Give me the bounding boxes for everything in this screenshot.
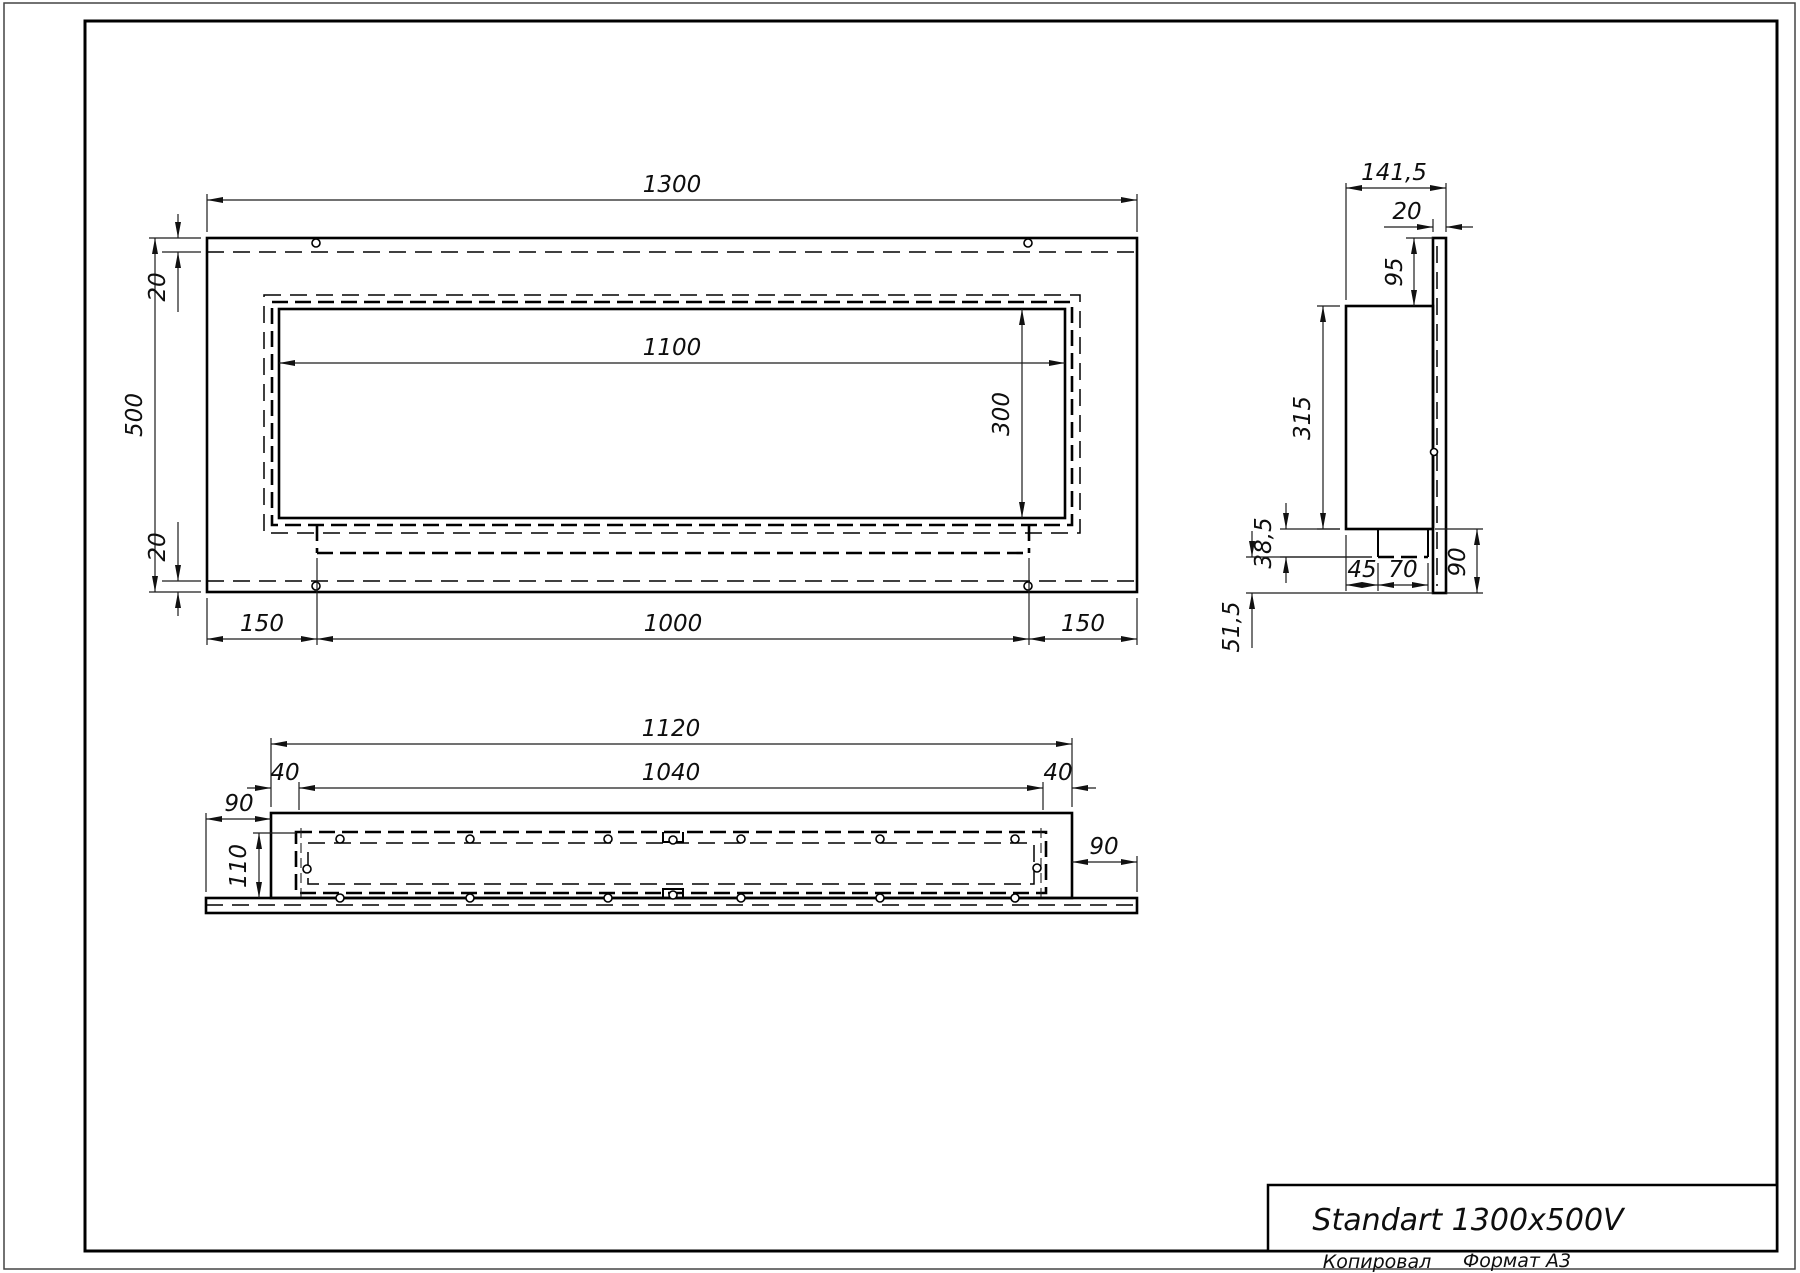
title-block: Standart 1300x500V Копировал Формат А3 bbox=[1268, 1185, 1777, 1273]
plan-view: 1120 1040 40 40 90 90 110 bbox=[206, 716, 1137, 913]
dim-plan-body-width: 1120 bbox=[642, 716, 701, 742]
drawing-canvas: 1300 500 20 20 150 1000 150 1100 300 bbox=[0, 0, 1800, 1273]
hole-icon bbox=[669, 891, 677, 899]
hole-icon bbox=[876, 835, 884, 843]
title-block-title: Standart 1300x500V bbox=[1312, 1203, 1626, 1238]
side-body-outline bbox=[1346, 306, 1433, 529]
hole-icon bbox=[312, 582, 320, 590]
side-plate-outline bbox=[1433, 238, 1446, 593]
dim-plan-left-end: 40 bbox=[270, 760, 299, 786]
hole-icon bbox=[737, 835, 745, 843]
dim-plan-inner-width: 1040 bbox=[642, 760, 701, 786]
hole-icon bbox=[312, 239, 320, 247]
dim-side-plate-drop: 90 bbox=[1445, 547, 1471, 576]
hole-icon bbox=[336, 835, 344, 843]
front-hidden-outer bbox=[264, 295, 1080, 533]
hole-icon bbox=[466, 835, 474, 843]
dim-front-height: 500 bbox=[122, 393, 148, 437]
dim-side-foot-inset: 45 bbox=[1347, 557, 1376, 583]
dim-plan-right-end: 40 bbox=[1043, 760, 1072, 786]
front-view: 1300 500 20 20 150 1000 150 1100 300 bbox=[122, 172, 1137, 645]
dim-plan-right-overhang: 90 bbox=[1089, 834, 1118, 860]
hole-icon bbox=[669, 836, 677, 844]
dim-plan-left-overhang: 90 bbox=[224, 791, 253, 817]
dim-side-top-offset: 95 bbox=[1382, 257, 1408, 286]
hole-icon bbox=[1024, 239, 1032, 247]
plan-hidden-inner bbox=[308, 843, 1034, 884]
dim-side-body-height: 315 bbox=[1290, 396, 1316, 440]
dim-front-width: 1300 bbox=[643, 172, 702, 198]
dim-side-plate-thickness: 20 bbox=[1392, 199, 1421, 225]
hole-icon bbox=[876, 894, 884, 902]
hole-icon bbox=[1011, 835, 1019, 843]
dim-front-top-gap: 20 bbox=[145, 272, 171, 301]
dim-front-opening-height: 300 bbox=[989, 392, 1015, 436]
hole-icon bbox=[303, 865, 311, 873]
hole-icon bbox=[604, 835, 612, 843]
copied-label: Копировал bbox=[1323, 1251, 1432, 1273]
dim-front-left-margin: 150 bbox=[240, 611, 284, 637]
side-view: 141,5 20 95 315 38,5 51,5 45 70 bbox=[1219, 160, 1483, 653]
hole-icon bbox=[604, 894, 612, 902]
dim-front-opening-width: 1100 bbox=[643, 335, 702, 361]
front-mounting-holes bbox=[312, 239, 1032, 590]
hole-icon bbox=[737, 894, 745, 902]
dim-plan-depth: 110 bbox=[226, 844, 252, 888]
dim-side-foot-length: 70 bbox=[1388, 557, 1417, 583]
dim-side-bottom-offset: 51,5 bbox=[1219, 601, 1245, 652]
dim-side-foot-height: 38,5 bbox=[1251, 517, 1277, 568]
hole-icon bbox=[336, 894, 344, 902]
plan-body-outline bbox=[271, 813, 1072, 898]
drawing-frame bbox=[85, 21, 1777, 1251]
hole-icon bbox=[1011, 894, 1019, 902]
dim-front-bottom-gap: 20 bbox=[145, 532, 171, 561]
dim-side-depth: 141,5 bbox=[1361, 160, 1427, 186]
drawing-sheet: 1300 500 20 20 150 1000 150 1100 300 bbox=[0, 0, 1800, 1273]
hole-icon bbox=[466, 894, 474, 902]
dim-front-center-span: 1000 bbox=[644, 611, 703, 637]
format-label: Формат А3 bbox=[1463, 1250, 1571, 1272]
hole-icon bbox=[1431, 449, 1438, 456]
hole-icon bbox=[1024, 582, 1032, 590]
hole-icon bbox=[1033, 864, 1041, 872]
dim-front-right-margin: 150 bbox=[1061, 611, 1105, 637]
